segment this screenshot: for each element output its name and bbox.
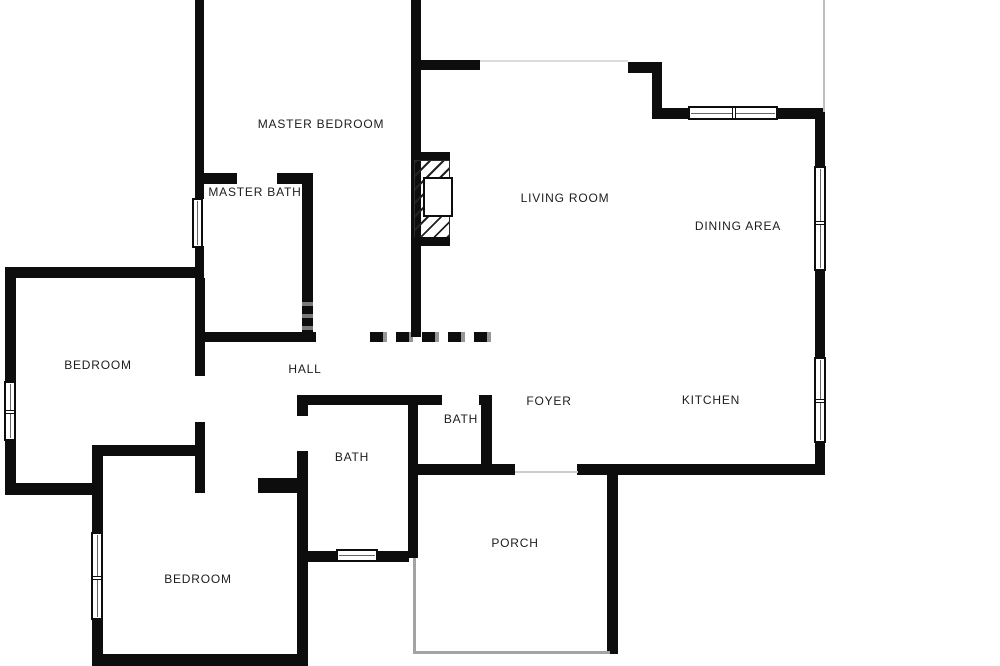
wall-master-bedroom-west-upper: [195, 0, 204, 199]
room-label-master-bath: MASTER BATH: [208, 185, 301, 199]
wall-hall-north-solid: [204, 332, 316, 342]
wall-master-bedroom-west-lower: [195, 246, 204, 269]
porch-boundary-line-west: [413, 558, 416, 654]
window-kitchen-east: [814, 357, 826, 443]
wall-dining-north-left: [652, 108, 688, 119]
watermark-dashes: [302, 294, 313, 333]
room-label-bath-small: BATH: [444, 412, 478, 426]
wall-bath-center-north: [297, 395, 409, 405]
window-dining-north: [688, 106, 778, 120]
room-label-dining-area: DINING AREA: [695, 219, 781, 233]
thin-line-exterior-top-right: [823, 0, 825, 112]
wall-living-room-north: [411, 60, 480, 70]
window-sash-divider: [6, 410, 14, 414]
wall-hall-west-lower: [195, 422, 205, 493]
room-label-bath-center: BATH: [335, 450, 369, 464]
wall-bath-center-south-right: [377, 551, 409, 562]
wall-kitchen-south: [577, 464, 825, 475]
window-sash-divider: [93, 576, 101, 580]
room-label-hall: HALL: [288, 362, 321, 376]
window-pane-line: [197, 201, 198, 245]
floor-plan: MASTER BEDROOM MASTER BATH LIVING ROOM D…: [0, 0, 1000, 666]
wall-exterior-east-middle: [815, 270, 825, 358]
window-bedroom-lower-west: [91, 532, 103, 620]
porch-boundary-line-south: [413, 651, 610, 654]
fireplace-bottom-bar: [412, 237, 450, 246]
wall-bedroom-upper-north: [5, 267, 204, 278]
window-bedroom-upper-west: [4, 381, 16, 441]
room-label-bedroom-upper: BEDROOM: [64, 358, 132, 372]
wall-bath-center-south-left: [297, 551, 337, 562]
wall-master-bath-north-left: [195, 173, 237, 184]
wall-exterior-east-upper: [815, 110, 825, 168]
wall-hall-south-header: [258, 478, 298, 493]
thin-line-living-north: [480, 60, 628, 62]
room-label-foyer: FOYER: [526, 394, 571, 408]
window-master-bath-west: [192, 198, 203, 248]
wall-foyer-south-left: [409, 464, 515, 475]
wall-bedroom-lower-north: [96, 445, 196, 456]
room-label-kitchen: KITCHEN: [682, 393, 740, 407]
wall-bedroom-lower-west-upper: [92, 445, 103, 533]
wall-bedroom-upper-south: [5, 483, 103, 495]
foyer-door-threshold-line: [515, 471, 578, 473]
wall-hall-west-upper: [195, 278, 205, 376]
window-pane-line: [339, 555, 375, 556]
fireplace-firebox: [423, 177, 453, 217]
room-label-porch: PORCH: [491, 536, 538, 550]
window-sash-divider: [816, 221, 824, 225]
room-label-master-bedroom: MASTER BEDROOM: [258, 117, 385, 131]
window-sash-divider: [732, 108, 736, 118]
wall-bath-small-east: [481, 395, 492, 475]
room-label-living-room: LIVING ROOM: [521, 191, 610, 205]
wall-porch-east: [607, 475, 618, 654]
window-dining-east: [814, 166, 826, 271]
wall-bath-center-east-porch-west: [408, 395, 418, 558]
wall-step-north-vertical: [652, 62, 662, 112]
wall-hall-north-dashed-watermark: [370, 332, 495, 342]
window-bath-center-south: [336, 549, 378, 562]
window-pane-line: [820, 169, 821, 268]
room-label-bedroom-lower: BEDROOM: [164, 572, 232, 586]
wall-bath-center-west-upper: [297, 395, 308, 416]
window-sash-divider: [816, 399, 824, 403]
wall-exterior-west-upper: [5, 267, 16, 383]
wall-bedroom-lower-south: [92, 654, 307, 666]
